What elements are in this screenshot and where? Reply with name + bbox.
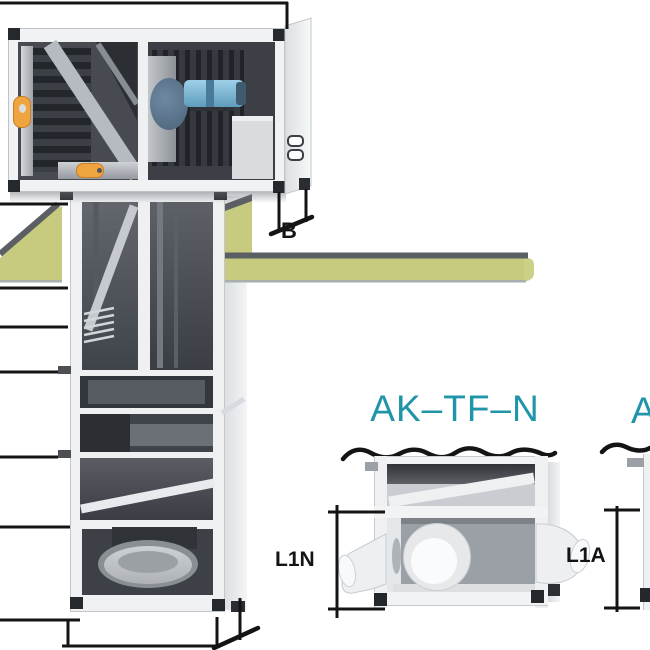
dimension-l1a xyxy=(0,0,650,650)
diagram-canvas: B AK–TF–N L1N L1A A xyxy=(0,0,650,650)
